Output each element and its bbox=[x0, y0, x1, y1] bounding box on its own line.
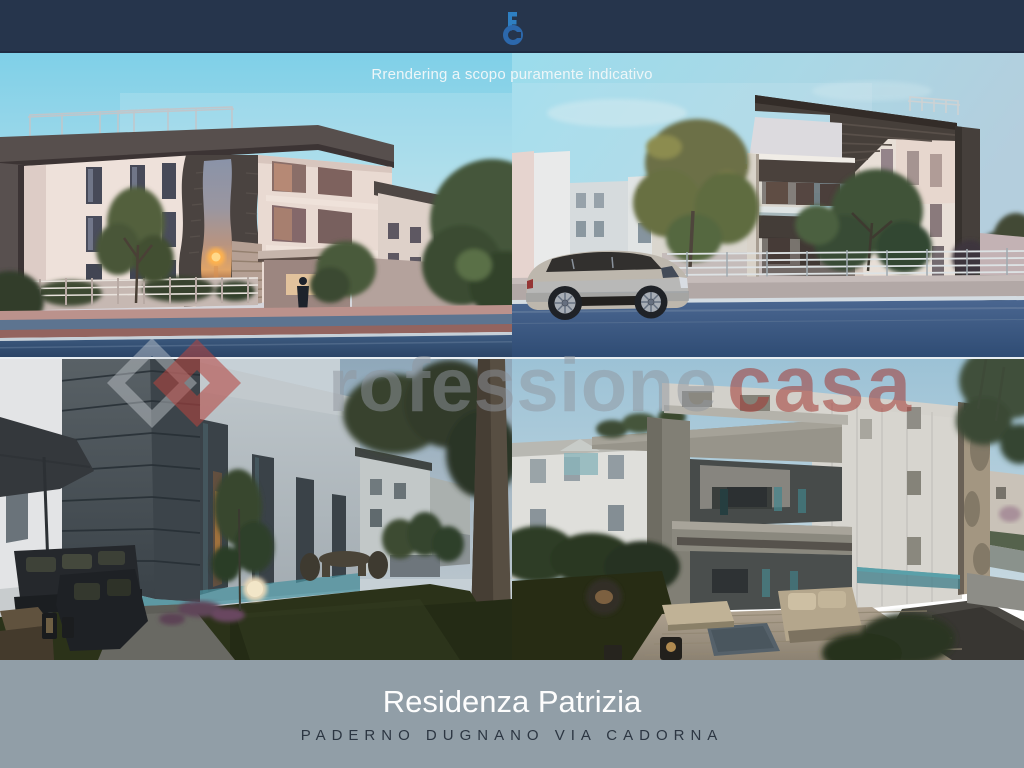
svg-text:casa: casa bbox=[727, 339, 913, 428]
svg-text:rofessione: rofessione bbox=[328, 343, 717, 428]
